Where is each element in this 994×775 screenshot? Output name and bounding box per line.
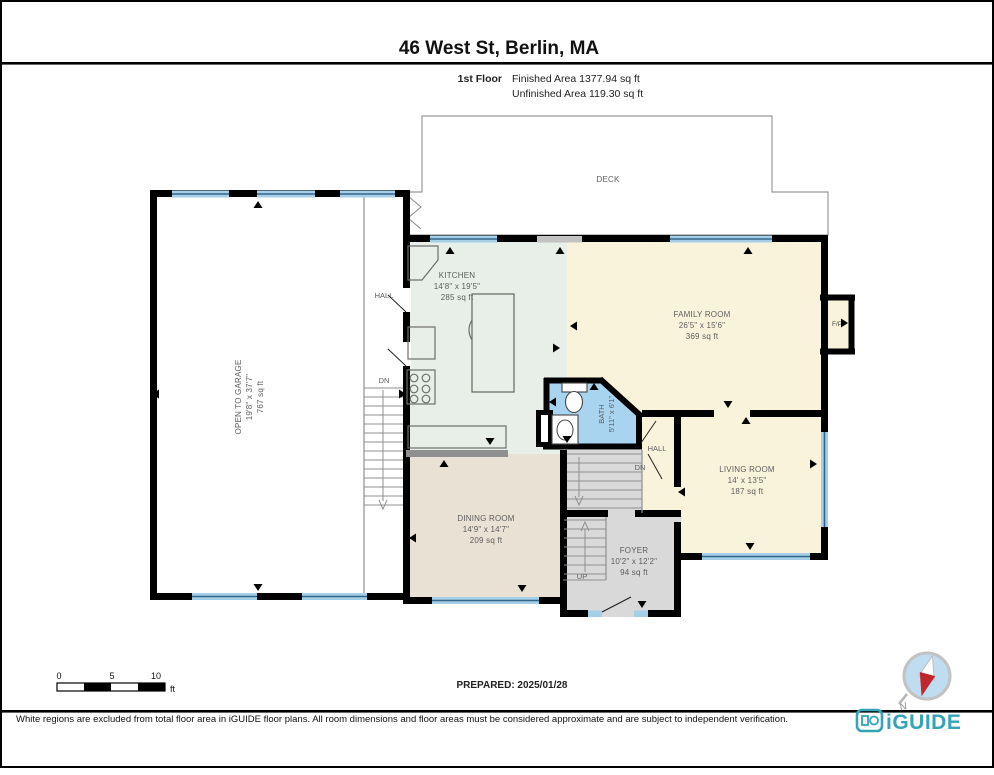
finished-area: Finished Area 1377.94 sq ft bbox=[512, 73, 640, 85]
header-divider bbox=[2, 62, 994, 65]
floor-label: 1st Floor bbox=[458, 73, 502, 85]
svg-text:5: 5 bbox=[109, 671, 114, 681]
svg-text:767 sq ft: 767 sq ft bbox=[256, 380, 265, 413]
svg-text:BATH: BATH bbox=[597, 404, 606, 423]
deck: DECK bbox=[407, 116, 828, 235]
svg-text:14'8" x 19'5": 14'8" x 19'5" bbox=[434, 282, 480, 291]
deck-label: DECK bbox=[596, 175, 619, 184]
toilet-icon bbox=[566, 392, 583, 413]
fireplace-label: F/P bbox=[832, 321, 842, 328]
svg-text:14' x 13'5": 14' x 13'5" bbox=[728, 476, 767, 485]
up-label: UP bbox=[577, 572, 587, 581]
svg-text:LIVING ROOM: LIVING ROOM bbox=[719, 465, 775, 474]
footer-divider bbox=[2, 710, 994, 713]
kitchen-dining-counter-bar bbox=[406, 450, 508, 457]
svg-text:285 sq ft: 285 sq ft bbox=[441, 293, 474, 302]
garage: OPEN TO GARAGE 19'8" x 37'7" 767 sq ft bbox=[154, 191, 407, 601]
svg-text:10'2" x 12'2": 10'2" x 12'2" bbox=[611, 557, 657, 566]
hall-door-opening-2 bbox=[402, 342, 411, 366]
svg-text:FOYER: FOYER bbox=[620, 546, 649, 555]
svg-text:187 sq ft: 187 sq ft bbox=[731, 487, 764, 496]
floor-plan-canvas: 46 West St, Berlin, MA 1st Floor Finishe… bbox=[2, 2, 994, 770]
compass-icon: N bbox=[898, 653, 950, 714]
svg-text:14'9" x 14'7": 14'9" x 14'7" bbox=[463, 525, 509, 534]
footer-disclaimer: White regions are excluded from total fl… bbox=[16, 714, 788, 725]
hall-door-opening-1 bbox=[402, 288, 411, 312]
svg-text:OPEN TO GARAGE: OPEN TO GARAGE bbox=[234, 360, 243, 435]
svg-text:5'11" x 6'1": 5'11" x 6'1" bbox=[607, 395, 616, 432]
scale-bar: 0 5 10 ft bbox=[56, 671, 175, 694]
svg-text:FAMILY ROOM: FAMILY ROOM bbox=[673, 310, 730, 319]
hall-west-label: HALL bbox=[375, 291, 394, 300]
entry-sidelight-left bbox=[588, 611, 602, 618]
svg-text:19'8" x 37'7": 19'8" x 37'7" bbox=[245, 374, 254, 420]
svg-text:10: 10 bbox=[151, 671, 161, 681]
svg-text:26'5" x 15'6": 26'5" x 15'6" bbox=[679, 321, 725, 330]
dn-west-label: DN bbox=[379, 376, 390, 385]
svg-text:209 sq ft: 209 sq ft bbox=[470, 536, 503, 545]
iguide-logo: iGUIDE bbox=[857, 710, 961, 734]
svg-text:0: 0 bbox=[56, 671, 61, 681]
hall-center-label: HALL bbox=[648, 444, 667, 453]
bath-closet bbox=[539, 413, 551, 445]
dn-center-label: DN bbox=[635, 463, 646, 472]
page-title: 46 West St, Berlin, MA bbox=[399, 38, 600, 59]
entry-sidelight-right bbox=[634, 611, 648, 618]
svg-text:DINING ROOM: DINING ROOM bbox=[457, 514, 514, 523]
floor-plan-page: 46 West St, Berlin, MA 1st Floor Finishe… bbox=[0, 0, 994, 768]
toilet-tank bbox=[562, 383, 587, 392]
prepared-date: PREPARED: 2025/01/28 bbox=[457, 680, 568, 691]
svg-text:94 sq ft: 94 sq ft bbox=[620, 568, 648, 577]
deck-slider-door bbox=[537, 236, 582, 243]
unfinished-area: Unfinished Area 119.30 sq ft bbox=[512, 88, 643, 100]
scale-unit: ft bbox=[170, 684, 176, 694]
svg-text:KITCHEN: KITCHEN bbox=[439, 271, 476, 280]
iguide-logo-text: iGUIDE bbox=[886, 711, 961, 734]
svg-text:369 sq ft: 369 sq ft bbox=[686, 332, 719, 341]
